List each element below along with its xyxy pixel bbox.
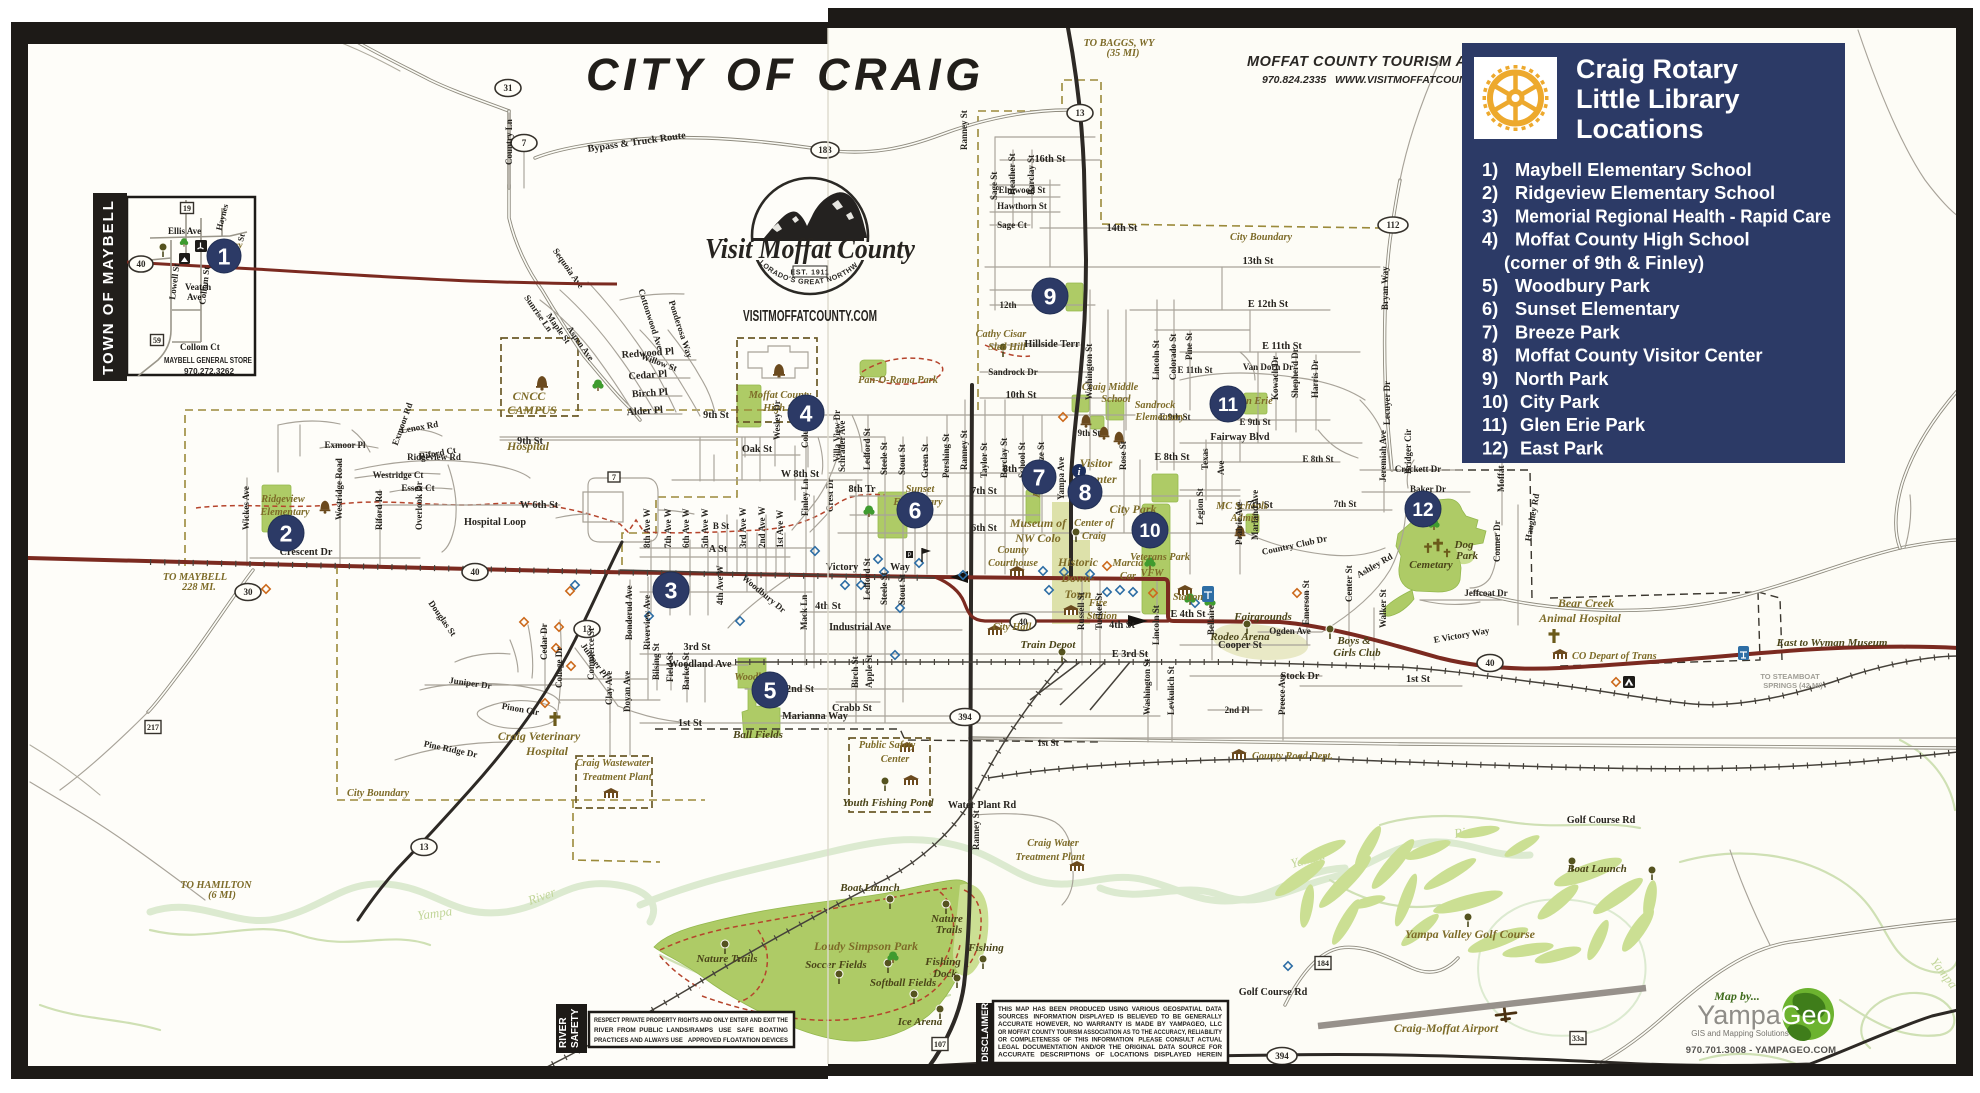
svg-text:DISCLAIMER: DISCLAIMER [980, 1003, 991, 1062]
svg-text:Harris Dr: Harris Dr [1310, 360, 1320, 398]
svg-text:Crabb St: Crabb St [832, 703, 873, 714]
svg-text:Treatment Plant: Treatment Plant [1015, 852, 1085, 863]
svg-text:City Park: City Park [1520, 391, 1600, 412]
svg-text:2nd Ave W: 2nd Ave W [757, 506, 767, 548]
svg-text:183: 183 [818, 145, 832, 155]
svg-text:Pan-O-Rama Park: Pan-O-Rama Park [858, 375, 939, 386]
svg-text:Bryan Way: Bryan Way [1380, 266, 1390, 310]
svg-text:3rd St: 3rd St [684, 642, 711, 653]
svg-text:(35 MI): (35 MI) [1107, 48, 1140, 59]
svg-text:12th: 12th [999, 300, 1016, 310]
svg-text:College Dr: College Dr [554, 647, 564, 688]
svg-text:Industrial Ave: Industrial Ave [829, 622, 891, 633]
svg-text:Ridgeview: Ridgeview [260, 494, 305, 505]
svg-text:Villa View Dr: Villa View Dr [832, 410, 842, 462]
svg-text:Courthouse: Courthouse [988, 558, 1038, 569]
svg-text:Rose St: Rose St [1118, 441, 1128, 470]
svg-text:1st Ave W: 1st Ave W [775, 510, 785, 548]
svg-text:Ice Arena: Ice Arena [897, 1016, 943, 1028]
svg-text:Country Ln: Country Ln [504, 119, 514, 165]
svg-text:North Park: North Park [1515, 368, 1609, 389]
svg-text:Woodland Ave: Woodland Ave [669, 659, 732, 670]
svg-text:Dock: Dock [932, 968, 957, 980]
svg-text:Treatment Plant: Treatment Plant [582, 772, 652, 783]
svg-text:8: 8 [1079, 479, 1092, 505]
svg-text:Bilsing St: Bilsing St [651, 643, 661, 680]
svg-text:Tucker St: Tucker St [1094, 593, 1104, 630]
svg-text:Ledford St: Ledford St [862, 428, 872, 470]
svg-text:14th St: 14th St [1107, 223, 1138, 234]
svg-text:Ellis Ave: Ellis Ave [168, 226, 201, 236]
svg-text:Girls Club: Girls Club [1333, 647, 1381, 659]
svg-text:Russell St: Russell St [1076, 592, 1086, 630]
svg-text:Museum of: Museum of [1009, 516, 1067, 530]
svg-text:5th Ave W: 5th Ave W [700, 508, 710, 548]
svg-text:33a: 33a [1572, 1034, 1584, 1043]
svg-text:40: 40 [1486, 658, 1496, 668]
svg-text:1st St: 1st St [678, 718, 703, 729]
svg-text:10: 10 [1139, 521, 1160, 542]
svg-text:Bear Creek: Bear Creek [1557, 596, 1614, 610]
svg-text:CO Depart of Trans: CO Depart of Trans [1572, 651, 1657, 662]
svg-text:Legion St: Legion St [1195, 488, 1205, 525]
svg-text:SAFETY: SAFETY [570, 1008, 581, 1048]
svg-text:Pershing St: Pershing St [941, 434, 951, 478]
svg-text:Public Safety: Public Safety [859, 740, 916, 751]
svg-text:3rd Ave W: 3rd Ave W [738, 507, 748, 548]
svg-text:TO STEAMBOAT: TO STEAMBOAT [1760, 672, 1820, 681]
svg-text:P: P [907, 553, 911, 559]
svg-text:9th St: 9th St [1078, 428, 1101, 438]
svg-text:Stout St: Stout St [897, 444, 907, 475]
svg-text:7th St: 7th St [971, 486, 997, 497]
svg-text:Locations: Locations [1576, 114, 1704, 144]
svg-text:13: 13 [420, 842, 430, 852]
svg-text:Down-: Down- [1060, 571, 1094, 585]
svg-text:Emerson St: Emerson St [1301, 580, 1311, 625]
svg-text:Walker St: Walker St [1378, 589, 1388, 628]
svg-text:40: 40 [137, 259, 147, 269]
svg-text:6): 6) [1482, 298, 1498, 319]
svg-text:Craig Water: Craig Water [1027, 838, 1079, 849]
svg-text:School: School [1101, 394, 1130, 405]
svg-text:Center: Center [881, 754, 911, 765]
svg-text:Lincoln St: Lincoln St [1151, 605, 1161, 645]
svg-text:County Road Dept.: County Road Dept. [1252, 751, 1333, 762]
svg-text:E 9th St: E 9th St [1239, 417, 1270, 427]
svg-text:5): 5) [1482, 275, 1498, 296]
svg-text:Craig-Moffat Airport: Craig-Moffat Airport [1394, 1021, 1499, 1035]
svg-text:Texas: Texas [1200, 448, 1210, 470]
svg-text:Colorado St: Colorado St [1168, 334, 1178, 380]
svg-text:4th Ave W: 4th Ave W [715, 565, 725, 605]
svg-text:Fairway Blvd: Fairway Blvd [1210, 432, 1269, 443]
svg-text:RESPECT PRIVATE PROPERTY RIGHT: RESPECT PRIVATE PROPERTY RIGHTS AND ONLY… [594, 1017, 789, 1024]
svg-text:9: 9 [1044, 283, 1057, 309]
svg-text:Westridge Ct: Westridge Ct [373, 470, 424, 480]
svg-text:Sandrock: Sandrock [1135, 400, 1176, 411]
svg-text:(6 MI): (6 MI) [208, 890, 236, 901]
svg-text:10): 10) [1482, 391, 1508, 412]
svg-text:Sunset Elementary: Sunset Elementary [1515, 298, 1680, 319]
svg-text:12): 12) [1482, 437, 1508, 458]
svg-text:Ball Fields: Ball Fields [732, 729, 783, 741]
svg-text:8th Tr: 8th Tr [848, 484, 876, 495]
svg-text:CITY OF CRAIG: CITY OF CRAIG [586, 49, 985, 100]
svg-text:Levkulich St: Levkulich St [1166, 666, 1176, 715]
svg-text:Cedar Dr: Cedar Dr [539, 623, 549, 660]
svg-text:11): 11) [1482, 414, 1507, 435]
svg-text:4: 4 [800, 400, 813, 426]
svg-text:3: 3 [665, 577, 678, 603]
svg-text:16th St: 16th St [1035, 154, 1066, 165]
svg-text:ACCURATE HOWEVER, NO WARRAN: ACCURATE HOWEVER, NO WARRANTY IS MADE BY… [998, 1021, 1222, 1028]
svg-text:GIS and Mapping Solutions: GIS and Mapping Solutions [1691, 1029, 1788, 1038]
svg-text:184: 184 [1317, 959, 1329, 968]
svg-text:Train Depot: Train Depot [1021, 639, 1077, 651]
svg-text:Hawthorn St: Hawthorn St [997, 201, 1047, 211]
svg-text:Breeze Park: Breeze Park [1515, 321, 1621, 342]
svg-text:Ranney St: Ranney St [959, 430, 969, 470]
svg-text:40: 40 [471, 567, 481, 577]
svg-text:City Hall: City Hall [993, 622, 1032, 633]
svg-text:E 8th St: E 8th St [1154, 452, 1190, 463]
svg-text:Pine St: Pine St [1184, 333, 1194, 360]
svg-text:Steele St: Steele St [879, 442, 889, 475]
svg-text:Visit Moffat County: Visit Moffat County [705, 233, 915, 265]
svg-text:VISITMOFFATCOUNTY.COM: VISITMOFFATCOUNTY.COM [743, 308, 877, 325]
svg-text:Bellaire: Bellaire [1206, 605, 1216, 635]
svg-text:CAMPUS: CAMPUS [507, 403, 557, 417]
svg-text:Boat Launch: Boat Launch [1566, 863, 1627, 875]
svg-text:2nd Pl: 2nd Pl [1225, 705, 1250, 715]
svg-text:Cathy Cisar: Cathy Cisar [976, 329, 1028, 340]
svg-text:City Boundary: City Boundary [347, 788, 410, 799]
svg-text:Riford Rd: Riford Rd [374, 491, 384, 530]
svg-text:9th St: 9th St [703, 410, 729, 421]
svg-text:Field St: Field St [665, 652, 675, 682]
svg-text:Center St: Center St [1344, 565, 1354, 602]
svg-text:Van Dorn Dr: Van Dorn Dr [1243, 362, 1293, 372]
svg-text:Westridge Road: Westridge Road [334, 458, 344, 520]
svg-text:East Park: East Park [1520, 437, 1604, 458]
svg-text:Ave: Ave [1216, 461, 1226, 475]
svg-text:Washington St: Washington St [1084, 344, 1094, 400]
svg-text:County: County [998, 545, 1029, 556]
svg-text:12: 12 [1412, 500, 1433, 521]
svg-text:Cemetary: Cemetary [1409, 559, 1452, 571]
svg-text:Way: Way [890, 562, 910, 573]
svg-text:Maybell Elementary School: Maybell Elementary School [1515, 159, 1752, 180]
svg-text:8): 8) [1482, 345, 1498, 366]
svg-text:A St: A St [709, 544, 728, 555]
svg-text:1): 1) [1482, 159, 1498, 180]
svg-text:Victory: Victory [826, 562, 858, 573]
svg-text:Golf Course Rd: Golf Course Rd [1567, 815, 1636, 826]
svg-text:Apple St: Apple St [864, 655, 874, 688]
svg-text:Sage St: Sage St [989, 172, 999, 200]
svg-text:Overlook Dr: Overlook Dr [414, 481, 424, 530]
svg-text:Jeremiah Ave: Jeremiah Ave [1378, 430, 1388, 482]
svg-text:970.701.3008 - YAMPAGEO.COM: 970.701.3008 - YAMPAGEO.COM [1686, 1045, 1836, 1056]
svg-text:Craig: Craig [1082, 531, 1106, 542]
svg-text:Heather St: Heather St [1007, 153, 1017, 195]
svg-text:Animal Hospital: Animal Hospital [1538, 611, 1621, 625]
svg-text:TOWN OF MAYBELL: TOWN OF MAYBELL [100, 199, 117, 375]
svg-text:E 12th St: E 12th St [1248, 299, 1289, 310]
svg-text:B St: B St [713, 521, 729, 531]
svg-text:Elmwood St: Elmwood St [999, 185, 1046, 195]
svg-text:ACCURATE DESCRIPTIONS OF: ACCURATE DESCRIPTIONS OF LOCATIONS DISPL… [998, 1052, 1222, 1059]
svg-text:Hillside Terr: Hillside Terr [1024, 339, 1080, 350]
svg-text:Wickes Ave: Wickes Ave [241, 486, 251, 530]
svg-text:Taylor St: Taylor St [979, 443, 989, 478]
svg-text:Yampa: Yampa [1697, 1000, 1782, 1030]
svg-text:LEGAL DOCUMENTATION AND/OR: LEGAL DOCUMENTATION AND/OR THE ORIGINAL … [998, 1044, 1222, 1051]
svg-text:Boys &: Boys & [1336, 635, 1371, 647]
svg-text:Conner Dr: Conner Dr [1492, 520, 1502, 562]
svg-text:Veterans Park: Veterans Park [1130, 552, 1191, 563]
svg-text:Ogden Ave: Ogden Ave [1269, 626, 1311, 636]
svg-text:Ranney St: Ranney St [971, 810, 981, 850]
svg-text:Preece Ave: Preece Ave [1277, 674, 1287, 715]
svg-text:Ave: Ave [187, 292, 201, 302]
svg-text:Soccer Fields: Soccer Fields [805, 959, 866, 971]
svg-text:2: 2 [280, 520, 293, 546]
svg-text:9): 9) [1482, 368, 1498, 389]
svg-text:Hospital: Hospital [525, 744, 569, 758]
svg-text:Visitor: Visitor [1080, 456, 1113, 470]
svg-text:1: 1 [218, 243, 231, 269]
svg-text:Boat Launch: Boat Launch [839, 882, 900, 894]
svg-text:SPRINGS (42 MI): SPRINGS (42 MI) [1763, 681, 1823, 690]
svg-text:Washington St: Washington St [1142, 659, 1152, 715]
svg-text:Barclay St: Barclay St [1026, 155, 1036, 195]
svg-text:Doyan Ave: Doyan Ave [622, 671, 632, 712]
svg-text:7: 7 [612, 473, 616, 482]
svg-text:Sandrock Dr: Sandrock Dr [988, 367, 1038, 377]
svg-text:Rodeo Arena: Rodeo Arena [1209, 631, 1270, 643]
svg-text:Hospital: Hospital [506, 439, 550, 453]
svg-text:Finley Ln: Finley Ln [800, 479, 810, 516]
svg-text:13th St: 13th St [1243, 256, 1274, 267]
svg-text:31: 31 [504, 83, 514, 93]
svg-text:Crockett Dr: Crockett Dr [1395, 464, 1442, 474]
svg-text:Crest Dr: Crest Dr [825, 478, 835, 512]
svg-text:Youth Fishing Pond: Youth Fishing Pond [842, 797, 934, 809]
svg-text:Sage Ct: Sage Ct [997, 220, 1027, 230]
svg-text:SOURCES INFORMATION DISPLAY: SOURCES INFORMATION DISPLAYED IS BELIEVE… [998, 1014, 1222, 1021]
svg-text:Woodbury Park: Woodbury Park [1515, 275, 1651, 296]
svg-text:E 8th St: E 8th St [1302, 454, 1333, 464]
svg-text:Craig Wastewater: Craig Wastewater [576, 758, 652, 769]
svg-text:6th Ave W: 6th Ave W [681, 508, 691, 548]
svg-text:Moffat County High School: Moffat County High School [1515, 229, 1750, 250]
svg-text:Fishing: Fishing [924, 956, 961, 968]
svg-text:Bonderud Ave: Bonderud Ave [624, 585, 634, 640]
svg-text:112: 112 [1386, 220, 1400, 230]
svg-text:Yampa Ave: Yampa Ave [1056, 457, 1066, 500]
svg-text:13: 13 [1076, 108, 1086, 118]
svg-text:Kowach Dr: Kowach Dr [1270, 356, 1280, 400]
svg-text:8th Ave W: 8th Ave W [642, 508, 652, 548]
svg-text:1st St: 1st St [1037, 738, 1058, 748]
svg-text:Glen Erie Park: Glen Erie Park [1520, 414, 1646, 435]
svg-text:Fairgrounds: Fairgrounds [1233, 611, 1291, 623]
svg-text:Shepherd Dr: Shepherd Dr [1290, 348, 1300, 398]
svg-text:Memorial Regional Health - Rap: Memorial Regional Health - Rapid Care [1515, 205, 1831, 226]
svg-text:THIS MAP HAS BEEN PRODUCED: THIS MAP HAS BEEN PRODUCED USING VARIOUS… [998, 1006, 1222, 1013]
svg-text:Station: Station [1173, 592, 1204, 603]
svg-text:RIVER FROM PUBLIC LANDS/RAM: RIVER FROM PUBLIC LANDS/RAMPS USE SAFE B… [594, 1027, 788, 1034]
svg-text:OR MOFFAT COUNTY TOURISM ASSOC: OR MOFFAT COUNTY TOURISM ASSOCIATION AS … [998, 1029, 1222, 1036]
svg-text:Marland Ave: Marland Ave [1250, 490, 1260, 540]
svg-text:W 6th St: W 6th St [520, 500, 559, 511]
svg-text:VFW: VFW [1141, 568, 1165, 579]
svg-text:Lincoln St: Lincoln St [1151, 340, 1161, 380]
svg-text:Hospital Loop: Hospital Loop [464, 517, 526, 528]
svg-text:Little Library: Little Library [1576, 84, 1740, 114]
svg-text:6th St: 6th St [971, 523, 997, 534]
svg-text:Geo: Geo [1780, 1000, 1831, 1030]
svg-text:Ranney St: Ranney St [959, 110, 969, 150]
svg-text:7th St: 7th St [1334, 499, 1357, 509]
svg-text:Craig Veterinary: Craig Veterinary [498, 729, 581, 743]
svg-text:107: 107 [934, 1040, 946, 1049]
svg-text:19: 19 [183, 204, 191, 213]
svg-text:Barclay St: Barclay St [999, 438, 1009, 478]
svg-text:E 3rd St: E 3rd St [1112, 649, 1149, 660]
svg-text:Veatch: Veatch [185, 282, 211, 292]
svg-text:228 MI.: 228 MI. [181, 582, 216, 593]
svg-text:Nature Trails: Nature Trails [695, 953, 757, 965]
svg-text:Green St: Green St [920, 444, 930, 478]
svg-text:394: 394 [1275, 1051, 1289, 1061]
svg-text:Riverview Ave: Riverview Ave [642, 595, 652, 650]
svg-text:394: 394 [958, 712, 972, 722]
svg-text:59: 59 [153, 336, 161, 345]
svg-text:Ridgeview Elementary School: Ridgeview Elementary School [1515, 182, 1775, 203]
svg-text:Barker St: Barker St [681, 652, 691, 690]
svg-text:10th St: 10th St [1006, 390, 1037, 401]
svg-text:7th Ave W: 7th Ave W [663, 508, 673, 548]
svg-text:Lecuyer Dr: Lecuyer Dr [1382, 381, 1392, 425]
svg-text:Sled Hill: Sled Hill [988, 342, 1026, 353]
svg-text:Center of: Center of [1074, 518, 1115, 529]
svg-text:970.272.3262: 970.272.3262 [184, 366, 234, 376]
svg-text:Yampa Valley Golf Course: Yampa Valley Golf Course [1405, 927, 1536, 941]
svg-text:Softball Fields: Softball Fields [870, 977, 936, 989]
svg-text:Elementary: Elementary [1134, 412, 1185, 423]
svg-text:11: 11 [1218, 395, 1239, 416]
svg-text:Steele St: Steele St [879, 572, 889, 605]
svg-text:Wesley Dr: Wesley Dr [772, 400, 782, 440]
svg-text:PRACTICES AND ALWAYS USE APP: PRACTICES AND ALWAYS USE APPROVED FLOATA… [594, 1037, 789, 1044]
svg-text:5: 5 [764, 677, 777, 703]
svg-text:RIVER: RIVER [558, 1017, 569, 1048]
svg-text:Jeffcoat Dr: Jeffcoat Dr [1464, 588, 1507, 598]
svg-text:OR COMPLETENESS OF THIS IN: OR COMPLETENESS OF THIS INFORMATION PLEA… [998, 1036, 1222, 1043]
svg-text:2nd St: 2nd St [786, 684, 815, 695]
svg-text:217: 217 [147, 723, 159, 732]
svg-text:Oak St: Oak St [742, 444, 773, 455]
svg-text:Historic: Historic [1057, 555, 1099, 569]
svg-text:1st St: 1st St [1406, 674, 1431, 685]
svg-text:4): 4) [1482, 229, 1498, 250]
svg-text:30: 30 [244, 587, 254, 597]
svg-text:Moffat County Visitor Center: Moffat County Visitor Center [1515, 345, 1762, 366]
svg-text:Mack Ln: Mack Ln [799, 595, 809, 630]
svg-text:Trails: Trails [936, 924, 963, 936]
svg-text:7: 7 [522, 138, 527, 148]
svg-text:E 11th St: E 11th St [1177, 365, 1212, 375]
svg-text:2): 2) [1482, 182, 1498, 203]
svg-text:Fishing: Fishing [967, 942, 1004, 954]
svg-text:NW Colo: NW Colo [1014, 531, 1060, 545]
svg-text:Prairie Ave: Prairie Ave [1234, 502, 1244, 545]
svg-text:Park: Park [1456, 550, 1479, 562]
svg-text:Golf Course Rd: Golf Course Rd [1239, 987, 1308, 998]
svg-text:Stout St: Stout St [897, 574, 907, 605]
svg-text:Car: Car [1120, 571, 1137, 582]
svg-text:EST. 1911: EST. 1911 [790, 270, 829, 277]
svg-text:7): 7) [1482, 321, 1498, 342]
svg-text:E 4th St: E 4th St [1170, 609, 1206, 620]
svg-text:Ledford St: Ledford St [862, 558, 872, 600]
svg-text:CNCC: CNCC [513, 389, 547, 403]
svg-text:W 8th St: W 8th St [781, 469, 820, 480]
svg-text:3): 3) [1482, 205, 1498, 226]
svg-text:6: 6 [909, 497, 922, 523]
svg-text:East to Wyman Museum: East to Wyman Museum [1776, 637, 1888, 649]
svg-text:Birch St: Birch St [850, 656, 860, 688]
svg-text:Exmoor Pl: Exmoor Pl [324, 440, 366, 450]
svg-text:(corner of 9th & Finley): (corner of 9th & Finley) [1504, 252, 1704, 273]
svg-text:Collom Ct: Collom Ct [180, 342, 220, 352]
svg-text:City Boundary: City Boundary [1230, 232, 1293, 243]
svg-text:Craig Rotary: Craig Rotary [1576, 54, 1738, 84]
svg-text:Water Plant Rd: Water Plant Rd [948, 800, 1017, 811]
svg-text:7: 7 [1033, 464, 1046, 490]
svg-text:Bridger Cir: Bridger Cir [1403, 429, 1413, 474]
svg-text:MAYBELL GENERAL STORE: MAYBELL GENERAL STORE [164, 355, 252, 365]
